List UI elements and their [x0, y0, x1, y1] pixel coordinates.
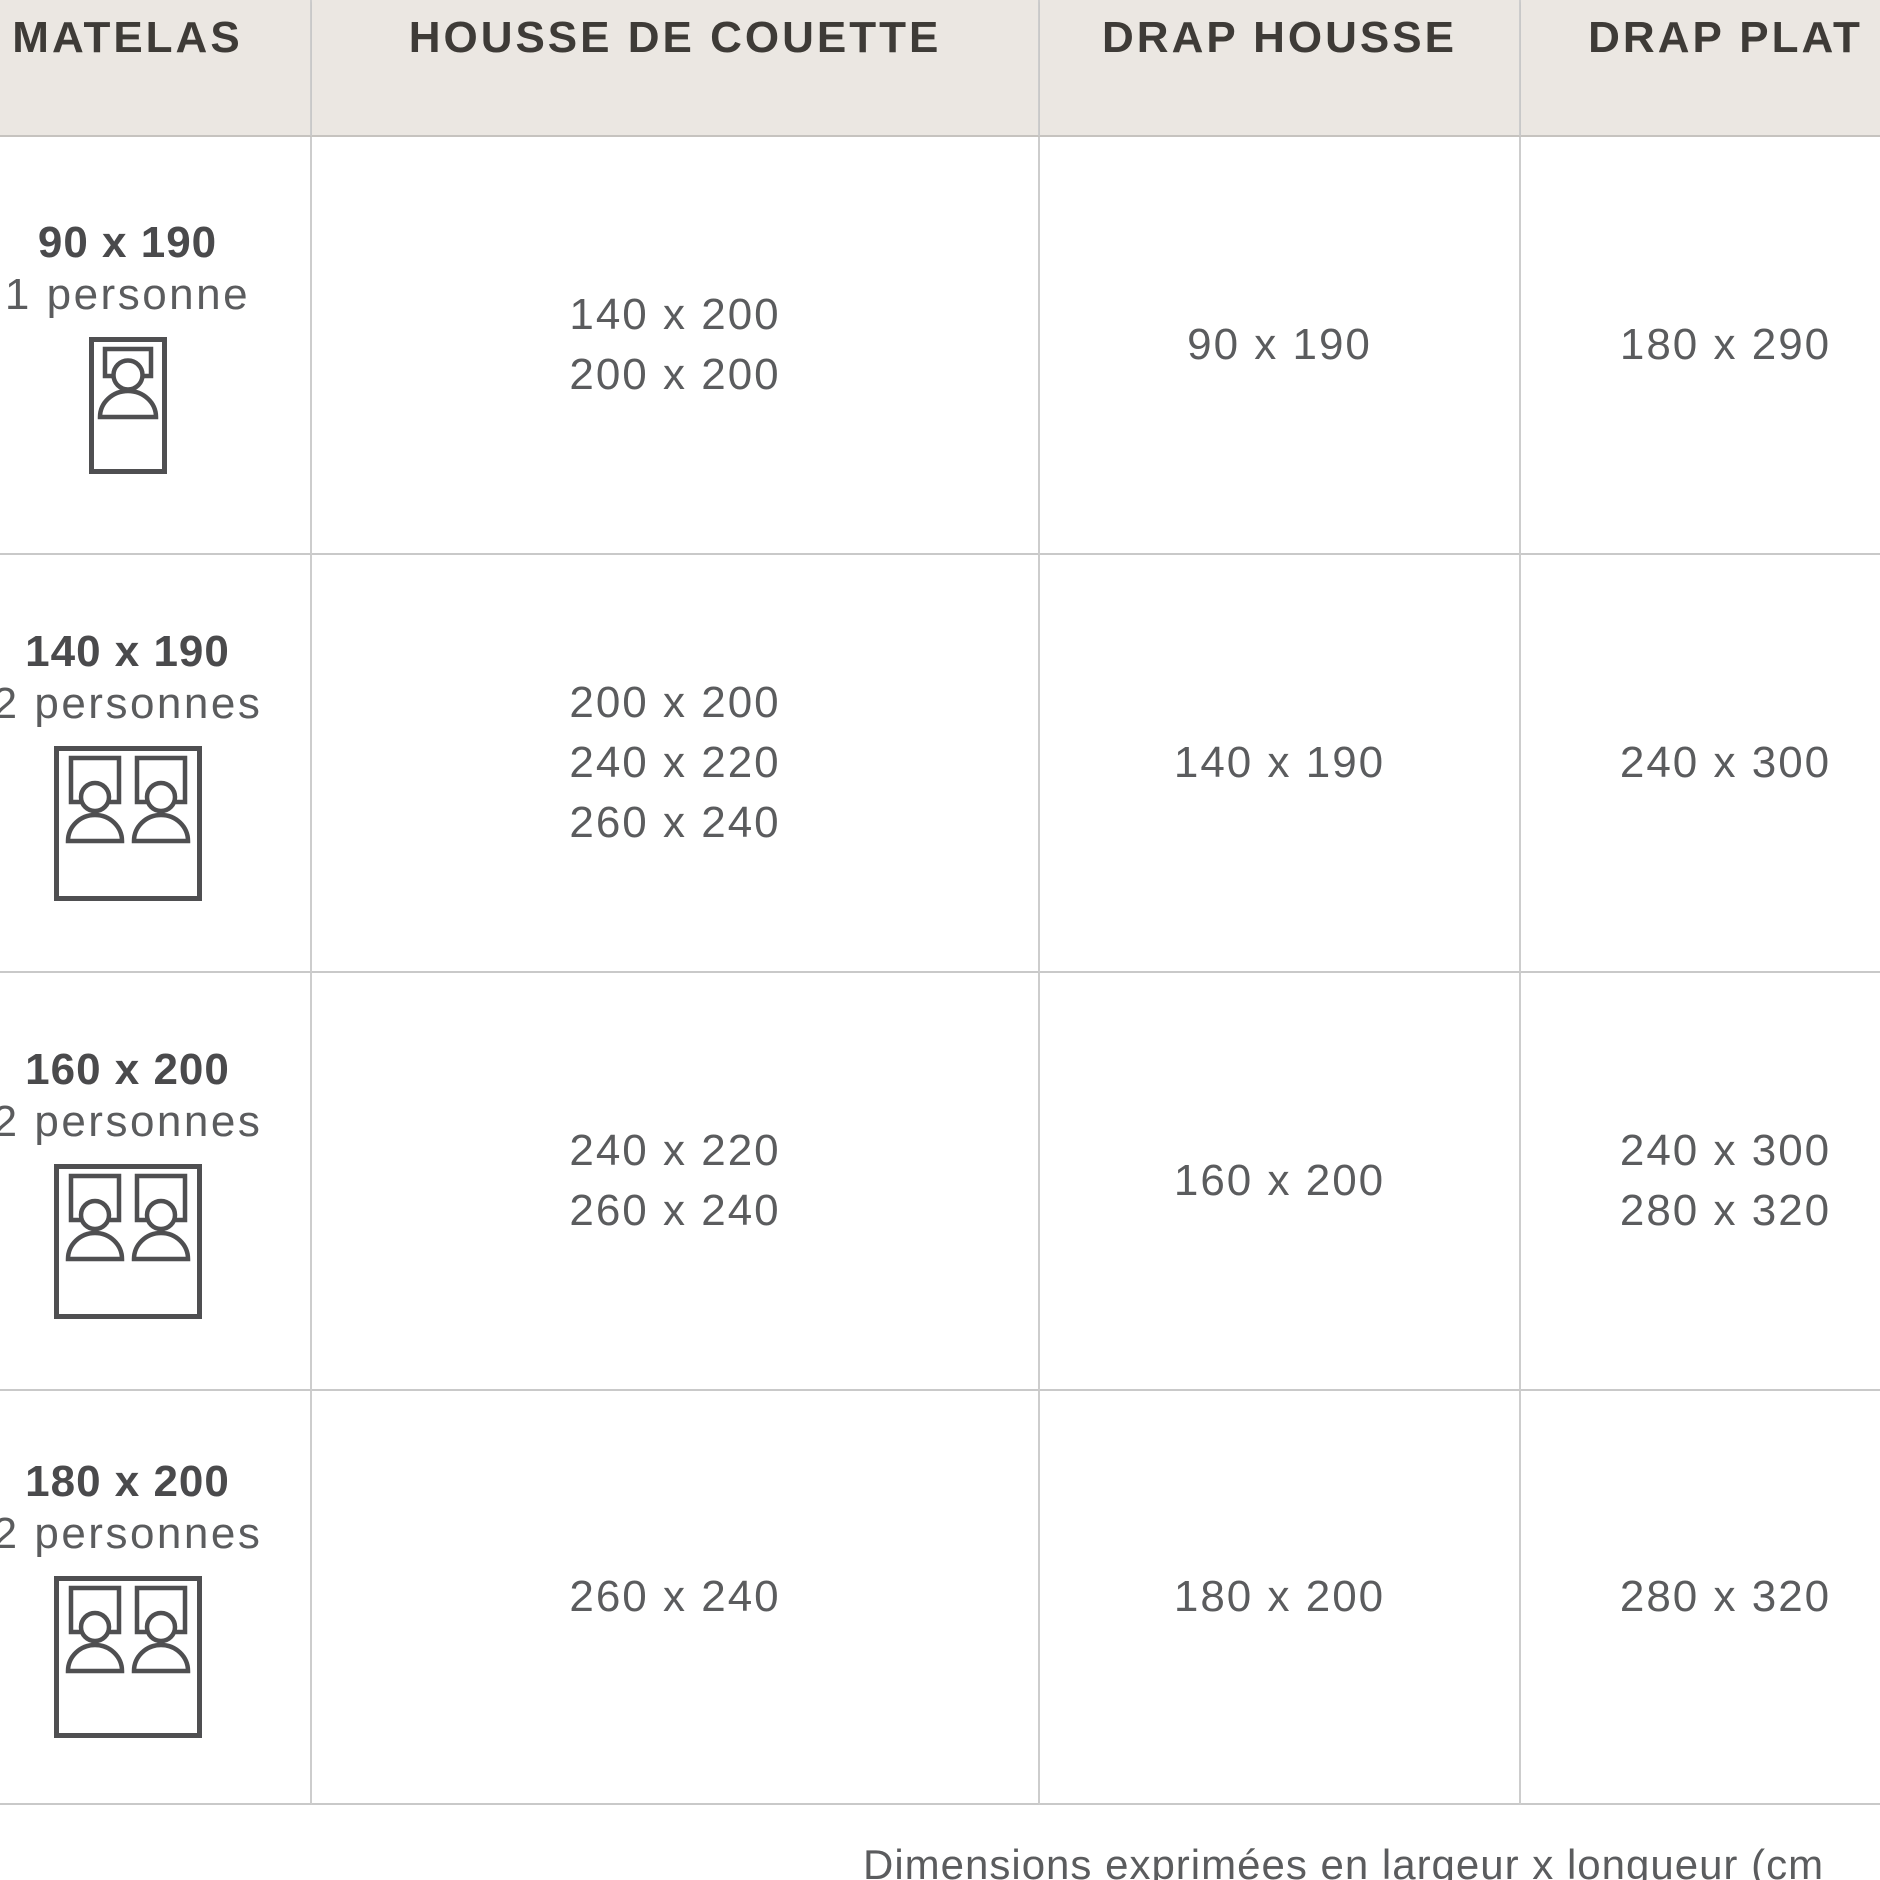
double-bed-icon: [54, 746, 202, 901]
mattress-size-label: 90 x 190: [38, 217, 217, 269]
cell-drap-housse-row1: 90 x 190: [1040, 137, 1521, 555]
value-line: 240 x 300: [1620, 733, 1831, 793]
header-cell-housse-de-couette: HOUSSE DE COUETTE: [312, 0, 1040, 137]
cell-drap-housse-row3: 160 x 200: [1040, 973, 1521, 1391]
column-header-drap-housse: DRAP HOUSSE: [1102, 16, 1457, 60]
cell-drap-plat-row4: 280 x 320: [1521, 1391, 1880, 1805]
cell-housse-row2: 200 x 200 240 x 220 260 x 240: [312, 555, 1040, 973]
value-line: 140 x 200: [569, 285, 780, 345]
value-line: 200 x 200: [569, 345, 780, 405]
value-line: 240 x 300: [1620, 1121, 1831, 1181]
value-line: 160 x 200: [1174, 1151, 1385, 1211]
column-header-housse-de-couette: HOUSSE DE COUETTE: [409, 16, 942, 60]
cell-housse-row1: 140 x 200 200 x 200: [312, 137, 1040, 555]
mattress-size-label: 180 x 200: [25, 1456, 230, 1508]
table-footnote: Dimensions exprimées en largeur x longue…: [863, 1841, 1824, 1880]
value-line: 260 x 240: [569, 1181, 780, 1241]
double-bed-icon: [54, 1164, 202, 1319]
cell-matelas-row3: 160 x 200 2 personnes: [0, 973, 312, 1391]
cell-drap-housse-row2: 140 x 190: [1040, 555, 1521, 973]
value-line: 90 x 190: [1187, 315, 1372, 375]
header-cell-drap-housse: DRAP HOUSSE: [1040, 0, 1521, 137]
value-line: 180 x 200: [1174, 1567, 1385, 1627]
value-line: 200 x 200: [569, 673, 780, 733]
persons-label: 2 personnes: [0, 678, 262, 730]
persons-label: 1 personne: [5, 269, 250, 321]
value-line: 280 x 320: [1620, 1181, 1831, 1241]
cell-matelas-row1: 90 x 190 1 personne: [0, 137, 312, 555]
value-line: 240 x 220: [569, 1121, 780, 1181]
value-line: 180 x 290: [1620, 315, 1831, 375]
header-cell-matelas: MATELAS: [0, 0, 312, 137]
value-line: 280 x 320: [1620, 1567, 1831, 1627]
mattress-size-label: 140 x 190: [25, 626, 230, 678]
persons-label: 2 personnes: [0, 1508, 262, 1560]
value-line: 240 x 220: [569, 733, 780, 793]
value-line: 140 x 190: [1174, 733, 1385, 793]
cell-matelas-row4: 180 x 200 2 personnes: [0, 1391, 312, 1805]
cell-drap-plat-row1: 180 x 290: [1521, 137, 1880, 555]
single-bed-icon: [89, 337, 167, 474]
cell-drap-plat-row2: 240 x 300: [1521, 555, 1880, 973]
value-line: 260 x 240: [569, 793, 780, 853]
header-cell-drap-plat: DRAP PLAT: [1521, 0, 1880, 137]
column-header-matelas: MATELAS: [12, 16, 242, 60]
size-guide-table: MATELAS HOUSSE DE COUETTE DRAP HOUSSE DR…: [0, 0, 1880, 1880]
double-bed-icon: [54, 1576, 202, 1738]
value-line: 260 x 240: [569, 1567, 780, 1627]
cell-housse-row3: 240 x 220 260 x 240: [312, 973, 1040, 1391]
table-grid: MATELAS HOUSSE DE COUETTE DRAP HOUSSE DR…: [0, 0, 1880, 1805]
persons-label: 2 personnes: [0, 1096, 262, 1148]
column-header-drap-plat: DRAP PLAT: [1588, 16, 1863, 60]
mattress-size-label: 160 x 200: [25, 1044, 230, 1096]
cell-matelas-row2: 140 x 190 2 personnes: [0, 555, 312, 973]
cell-drap-housse-row4: 180 x 200: [1040, 1391, 1521, 1805]
cell-drap-plat-row3: 240 x 300 280 x 320: [1521, 973, 1880, 1391]
cell-housse-row4: 260 x 240: [312, 1391, 1040, 1805]
